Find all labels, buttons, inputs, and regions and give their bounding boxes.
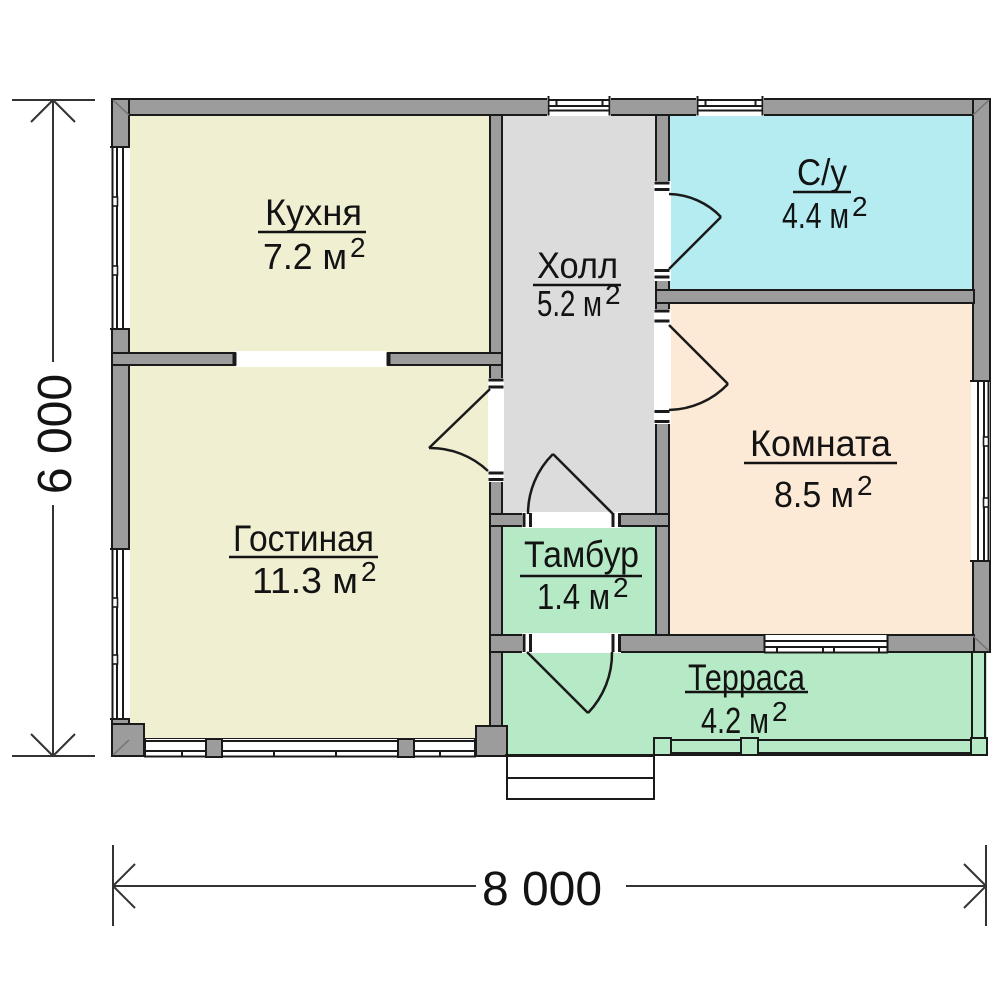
svg-text:8 000: 8 000 <box>482 863 602 916</box>
svg-text:2: 2 <box>350 232 366 263</box>
svg-text:С/у: С/у <box>797 152 847 193</box>
svg-text:6 000: 6 000 <box>29 374 82 494</box>
svg-text:5.2 м: 5.2 м <box>537 283 602 324</box>
svg-text:8.5 м: 8.5 м <box>774 474 854 515</box>
svg-text:2: 2 <box>613 572 629 603</box>
svg-text:2: 2 <box>852 191 868 222</box>
svg-text:Гостиная: Гостиная <box>233 518 374 559</box>
svg-text:2: 2 <box>772 696 788 727</box>
svg-text:7.2 м: 7.2 м <box>263 236 347 277</box>
svg-text:1.4 м: 1.4 м <box>537 576 610 617</box>
svg-text:Комната: Комната <box>750 423 891 464</box>
svg-text:Кухня: Кухня <box>265 192 362 233</box>
svg-text:11.3 м: 11.3 м <box>252 560 358 601</box>
svg-text:Тамбур: Тамбур <box>524 534 639 575</box>
svg-text:2: 2 <box>361 556 377 587</box>
svg-text:4.4 м: 4.4 м <box>782 195 849 236</box>
svg-text:2: 2 <box>605 279 621 310</box>
svg-text:2: 2 <box>857 470 873 501</box>
svg-text:4.2 м: 4.2 м <box>701 700 769 741</box>
